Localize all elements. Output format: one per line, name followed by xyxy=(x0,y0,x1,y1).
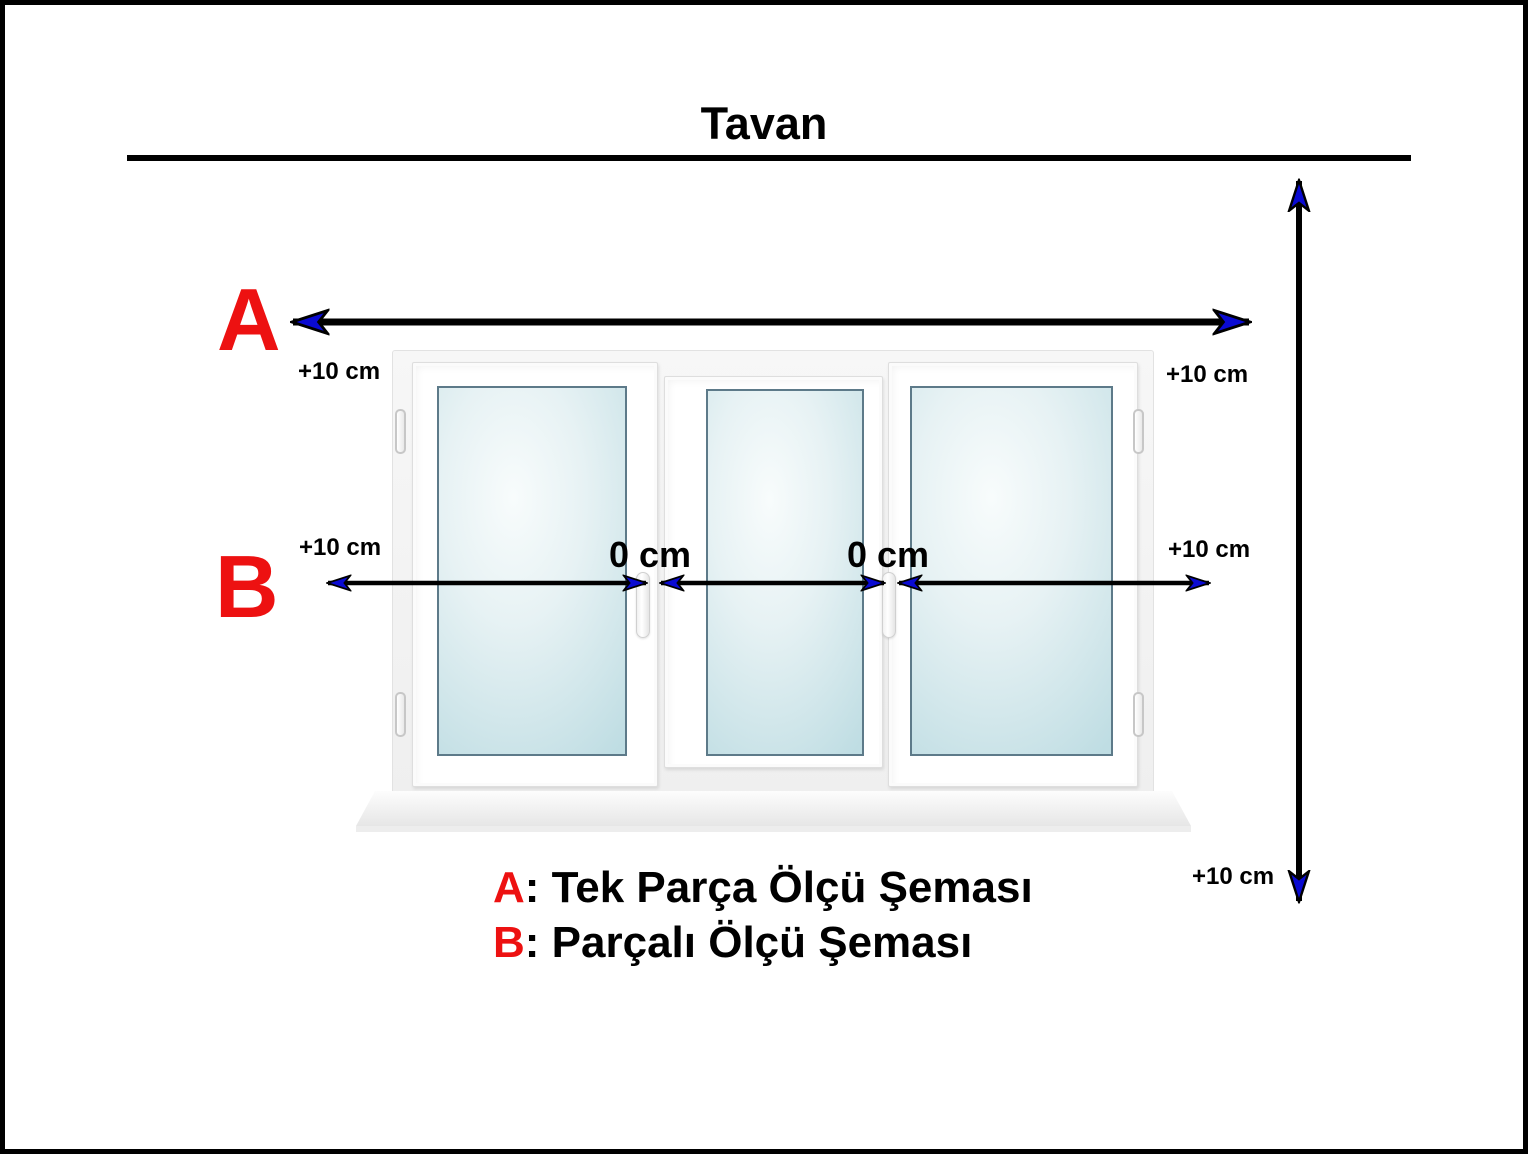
schema-b-letter: B xyxy=(215,543,279,631)
legend-a-letter: A xyxy=(493,863,525,912)
window-sill xyxy=(356,791,1191,826)
window-hinge-icon xyxy=(395,409,406,454)
window-hinge-icon xyxy=(1133,692,1144,737)
legend-line-b: B: Parçalı Ölçü Şeması xyxy=(493,915,1033,970)
window-handle-icon xyxy=(882,572,896,638)
window-glass-left xyxy=(437,386,627,756)
measurement-diagram: Tavan A B +10 cm +10 cm xyxy=(0,0,1528,1154)
window-sill-shadow xyxy=(356,826,1191,832)
gap-label-right: 0 cm xyxy=(847,537,929,573)
offset-label-a-left: +10 cm xyxy=(298,360,380,384)
legend-line-a: A: Tek Parça Ölçü Şeması xyxy=(493,860,1033,915)
schema-a-letter: A xyxy=(217,276,281,364)
window-handle-icon xyxy=(636,572,650,638)
ceiling-line xyxy=(127,155,1411,161)
window-glass-middle xyxy=(706,389,864,756)
window-hinge-icon xyxy=(1133,409,1144,454)
offset-label-height-bottom: +10 cm xyxy=(1192,865,1274,889)
offset-label-b-right: +10 cm xyxy=(1168,538,1250,562)
offset-label-b-left: +10 cm xyxy=(299,536,381,560)
window-glass-right xyxy=(910,386,1113,756)
gap-label-left: 0 cm xyxy=(609,537,691,573)
legend: A: Tek Parça Ölçü Şeması B: Parçalı Ölçü… xyxy=(493,860,1033,970)
legend-b-text: : Parçalı Ölçü Şeması xyxy=(525,918,973,967)
legend-b-letter: B xyxy=(493,918,525,967)
offset-label-a-right: +10 cm xyxy=(1166,363,1248,387)
ceiling-label: Tavan xyxy=(5,101,1523,146)
window-hinge-icon xyxy=(395,692,406,737)
legend-a-text: : Tek Parça Ölçü Şeması xyxy=(525,863,1033,912)
